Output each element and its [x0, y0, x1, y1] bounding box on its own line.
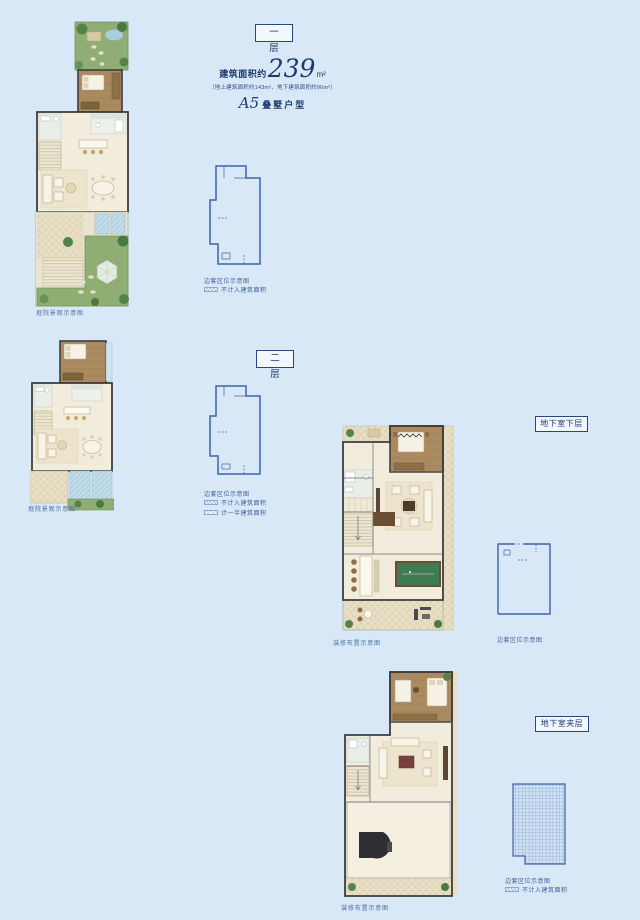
- legend-item: 计一半建筑面积: [221, 508, 267, 517]
- legend-title-row: 边套区位示意图: [204, 490, 267, 496]
- basement-mezzanine-keyplan: [505, 778, 573, 870]
- basement-lower-caption: 装修布置示意图: [307, 638, 407, 647]
- floor2-caption: 庭院景观示意图: [2, 504, 102, 513]
- floorplan-brochure-page: 庭院景观示意图 一 层 建筑面积约239m² （地上建筑面积约143m²、地下建…: [0, 0, 640, 920]
- floor2-bedroom: [60, 341, 112, 383]
- legend-title-row: 边套区位示意图: [497, 636, 543, 642]
- floor1-label: 一 层: [255, 24, 293, 42]
- floor1-legend: 边套区位示意图 不计入建筑面积: [204, 277, 267, 293]
- legend-title: 边套区位示意图: [505, 876, 551, 885]
- legend-title: 边套区位示意图: [204, 489, 250, 498]
- basement-lower-plan: [340, 424, 455, 634]
- basement-mezzanine-label: 地下室夹层: [535, 716, 589, 732]
- piano-shape: [359, 832, 391, 858]
- basement-mezzanine-plan: [335, 670, 460, 902]
- basement-lower-bedroom: [390, 426, 443, 472]
- excluded-area-swatch: [505, 887, 519, 892]
- basement-lower-patio: [343, 600, 443, 630]
- basement-lower-keyplan: [488, 530, 560, 624]
- floor1-bedroom: [78, 70, 122, 112]
- legend-item-row: 不计入建筑面积: [505, 887, 568, 893]
- legend-item: 不计入建筑面积: [522, 885, 568, 894]
- basement-lower-label: 地下室下层: [535, 416, 588, 432]
- mezzanine-study-bedroom: [390, 672, 452, 722]
- floor2-label: 二 层: [256, 350, 294, 368]
- floor1-top-garden: [75, 22, 129, 70]
- legend-title: 边套区位示意图: [204, 276, 250, 285]
- floor1-terrace-garden: [35, 212, 129, 306]
- legend-item-row: 计一半建筑面积: [204, 509, 267, 515]
- mezzanine-family-room: [347, 802, 450, 878]
- legend-item: 不计入建筑面积: [221, 285, 267, 294]
- floor1-keyplan: [204, 158, 268, 272]
- area-info-block: 建筑面积约239m² （地上建筑面积约143m²、地下建筑面积约96m²） A5…: [190, 58, 355, 112]
- excluded-area-swatch: [204, 500, 218, 505]
- area-unit: m²: [316, 70, 325, 79]
- floor2-legend: 边套区位示意图 不计入建筑面积 计一半建筑面积: [204, 490, 267, 515]
- floor1-main-rooms: [37, 112, 128, 212]
- legend-item-row: 不计入建筑面积: [204, 500, 267, 506]
- floor1-caption: 庭院景观示意图: [10, 308, 110, 317]
- area-detail-line: （地上建筑面积约143m²、地下建筑面积约96m²）: [190, 83, 355, 91]
- legend-title-row: 边套区位示意图: [204, 277, 267, 283]
- floor1-plan: [35, 20, 130, 308]
- legend-title: 边套区位示意图: [497, 635, 543, 644]
- mezzanine-bath-stairs: [347, 738, 369, 796]
- half-area-swatch: [204, 510, 218, 515]
- legend-title-row: 边套区位示意图: [505, 877, 568, 883]
- unit-model: A5: [239, 94, 259, 112]
- unit-type: 叠墅户型: [262, 98, 306, 111]
- floor2-plan: [30, 339, 114, 511]
- area-prefix: 建筑面积约: [219, 67, 267, 80]
- area-value: 239: [268, 58, 316, 81]
- unit-type-line: A5叠墅户型: [190, 94, 355, 112]
- basement-mezzanine-caption: 装修布置示意图: [315, 903, 415, 912]
- legend-item-row: 不计入建筑面积: [204, 287, 267, 293]
- basement-lower-legend: 边套区位示意图: [497, 636, 543, 642]
- floor2-keyplan: [204, 380, 268, 482]
- basement-mezzanine-legend: 边套区位示意图 不计入建筑面积: [505, 877, 568, 893]
- mezzanine-bottom-strip: [345, 878, 452, 896]
- gross-area-line: 建筑面积约239m²: [190, 58, 355, 81]
- excluded-area-swatch: [204, 287, 218, 292]
- floor2-main-rooms: [32, 383, 112, 471]
- legend-item: 不计入建筑面积: [221, 498, 267, 507]
